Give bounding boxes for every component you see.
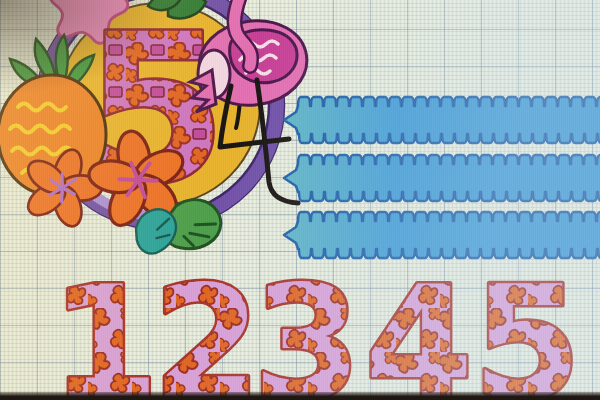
ribbon-group (284, 97, 600, 258)
number-row: 1 2 3 4 5 (51, 253, 582, 400)
wavy-ribbon[interactable] (284, 212, 600, 258)
digit-5[interactable]: 5 (473, 253, 582, 400)
digit-4[interactable]: 4 (365, 253, 474, 400)
digit-3[interactable]: 3 (253, 253, 362, 400)
digit-1[interactable]: 1 (51, 253, 160, 400)
digit-2[interactable]: 2 (153, 253, 262, 400)
wavy-ribbon[interactable] (284, 97, 600, 143)
wavy-ribbon[interactable] (284, 155, 600, 201)
design-canvas: 5 (0, 0, 600, 400)
canvas-artboard: 5 (0, 0, 600, 400)
